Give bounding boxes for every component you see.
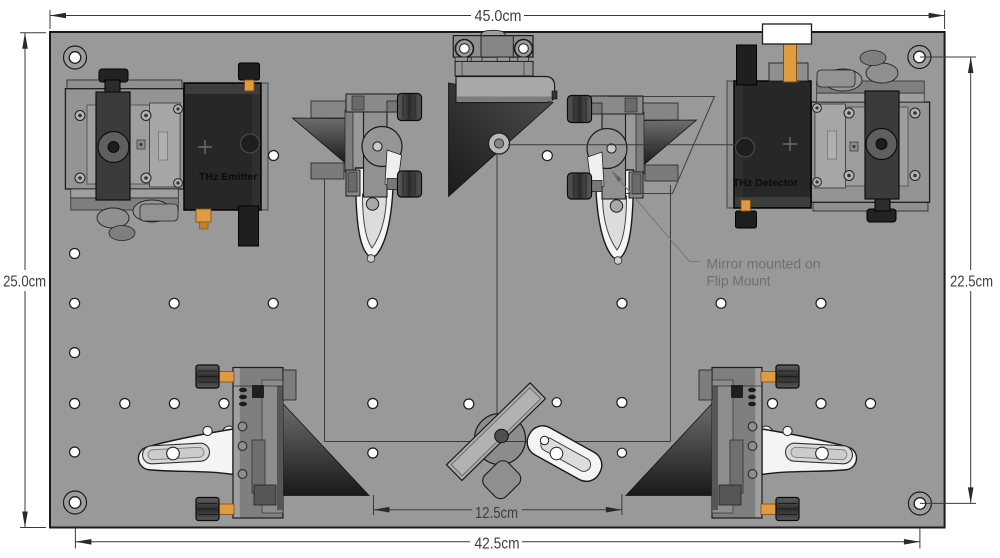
svg-text:12.5cm: 12.5cm xyxy=(475,505,518,522)
svg-text:45.0cm: 45.0cm xyxy=(475,8,522,25)
svg-text:Flip Mount: Flip Mount xyxy=(707,273,771,289)
svg-text:42.5cm: 42.5cm xyxy=(475,535,520,552)
svg-text:25.0cm: 25.0cm xyxy=(3,274,46,291)
svg-text:Mirror mounted on: Mirror mounted on xyxy=(707,256,821,272)
svg-text:THz Detector: THz Detector xyxy=(733,177,798,189)
svg-text:THz Emitter: THz Emitter xyxy=(199,171,257,183)
svg-text:22.5cm: 22.5cm xyxy=(950,274,993,291)
